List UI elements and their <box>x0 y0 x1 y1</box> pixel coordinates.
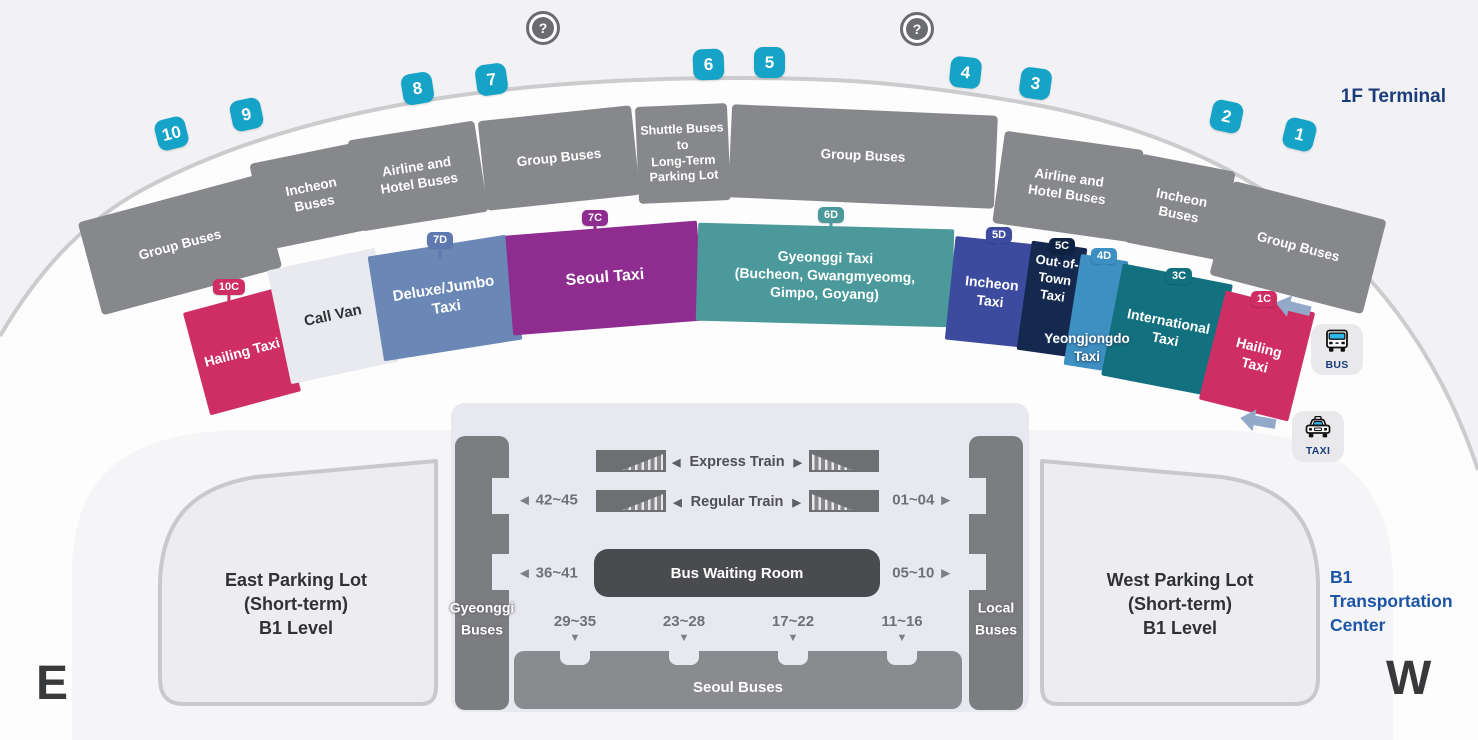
zone-label-line: (Bucheon, Gwangmyeomg, <box>735 264 916 287</box>
help-icon[interactable]: ? <box>900 12 934 46</box>
zone-label-line: Gimpo, Goyang) <box>770 283 879 304</box>
zone-gyeonggi-taxi: Gyeonggi Taxi (Bucheon, Gwangmyeomg, Gim… <box>696 223 954 328</box>
taxi-legend-button[interactable]: TAXI <box>1292 411 1344 462</box>
platform-range-01-04: 01~04 ▶ <box>892 492 950 509</box>
train-platform-graphic <box>809 490 879 512</box>
segment-label: Shuttle Buses to Long-Term Parking Lot <box>636 120 731 186</box>
b1-transportation-center-title: B1 Transportation Center <box>1330 565 1453 637</box>
door-code-6D: 6D <box>818 207 844 223</box>
door-code-4D: 4D <box>1091 248 1117 264</box>
right-triangle-icon: ▶ <box>792 496 800 509</box>
door-code-7C: 7C <box>582 210 608 226</box>
compass-west: W <box>1386 655 1431 703</box>
parking-label-line: West Parking Lot <box>1107 568 1254 592</box>
zone-deluxe-jumbo-taxi: Deluxe/Jumbo Taxi <box>368 235 523 362</box>
platform-range-text: 42~45 <box>536 492 578 509</box>
gate-number-4: 4 <box>948 55 982 89</box>
left-triangle-icon: ◀ <box>672 456 680 469</box>
zone-label-line: Yeongjongdo <box>1012 330 1162 348</box>
b1-title-line: Center <box>1330 613 1453 637</box>
gate-number-5: 5 <box>754 47 785 78</box>
segment-label: Airline and Hotel Buses <box>364 151 472 201</box>
gyeonggi-buses-label: Gyeonggi Buses <box>450 597 515 640</box>
down-triangle-icon: ▼ <box>788 633 799 643</box>
right-triangle-icon: ▶ <box>794 456 802 469</box>
gate-number-7: 7 <box>474 62 509 97</box>
yeongjongdo-taxi-label: Yeongjongdo Taxi <box>1012 330 1162 366</box>
airport-transportation-map: 1F Terminal B1 Transportation Center ? ?… <box>0 0 1478 740</box>
stop-range-text: 29~35 <box>554 613 596 630</box>
bus-bay-notch <box>560 650 590 665</box>
gate-number-3: 3 <box>1018 66 1053 101</box>
column-label-line: Gyeonggi <box>450 597 515 619</box>
column-label-line: Local <box>975 597 1017 619</box>
train-platform-graphic <box>596 450 666 472</box>
door-code-5D: 5D <box>986 227 1012 243</box>
bus-icon <box>1324 329 1350 358</box>
stop-range-text: 11~16 <box>881 613 922 630</box>
stop-range-text: 17~22 <box>772 613 814 630</box>
bus-bay-notch <box>669 650 699 665</box>
platform-notch <box>492 554 519 590</box>
bus-bay-notch <box>778 650 808 665</box>
gate-number-8: 8 <box>400 71 435 106</box>
bus-button-label: BUS <box>1325 359 1348 371</box>
curbside-segment-group-buses: Group Buses <box>478 105 641 211</box>
door-code-10C: 10C <box>213 279 245 295</box>
platform-notch <box>959 478 986 514</box>
platform-range-42-45: ◀ 42~45 <box>520 492 578 509</box>
parking-label-line: B1 Level <box>1107 616 1254 640</box>
stop-range-text: 23~28 <box>663 613 705 630</box>
parking-label-line: (Short-term) <box>1107 592 1254 616</box>
down-triangle-icon: ▼ <box>570 633 581 643</box>
door-code-7D: 7D <box>427 232 453 248</box>
down-triangle-icon: ▼ <box>679 633 690 643</box>
train-platform-graphic <box>809 450 879 472</box>
zone-seoul-taxi: Seoul Taxi <box>505 221 704 336</box>
question-mark-icon: ? <box>532 17 554 39</box>
b1-title-line: B1 <box>1330 565 1453 589</box>
platform-range-text: 05~10 <box>892 565 934 582</box>
left-triangle-icon: ◀ <box>673 496 681 509</box>
bus-stop-23-28: 23~28 ▼ <box>663 613 705 643</box>
floor-title-1f-terminal: 1F Terminal <box>1336 86 1446 108</box>
left-triangle-icon: ◀ <box>520 567 528 580</box>
segment-label: Incheon Buses <box>1142 184 1217 230</box>
local-buses-label: Local Buses <box>975 597 1017 640</box>
train-platform-graphic <box>596 490 666 512</box>
parking-label-line: (Short-term) <box>225 592 367 616</box>
platform-notch <box>959 554 986 590</box>
right-triangle-icon: ▶ <box>941 494 949 507</box>
bus-stop-11-16: 11~16 ▼ <box>881 613 922 643</box>
b1-title-line: Transportation <box>1330 589 1453 613</box>
bus-stop-29-35: 29~35 ▼ <box>554 613 596 643</box>
question-mark-icon: ? <box>906 18 928 40</box>
bus-bay-notch <box>887 650 917 665</box>
curbside-segment-airline-hotel-buses: Airline and Hotel Buses <box>992 131 1144 243</box>
parking-label-line: East Parking Lot <box>225 568 367 592</box>
taxi-icon <box>1304 416 1332 444</box>
gate-number-6: 6 <box>692 48 724 80</box>
segment-label: Airline and Hotel Buses <box>1014 163 1122 211</box>
column-label-line: Buses <box>975 619 1017 641</box>
parking-label-line: B1 Level <box>225 616 367 640</box>
segment-label: Incheon Buses <box>275 172 350 219</box>
compass-east: E <box>36 660 68 708</box>
platform-range-text: 01~04 <box>892 492 934 509</box>
platform-range-36-41: ◀ 36~41 <box>520 565 578 582</box>
curbside-segment-shuttle-buses: Shuttle Buses to Long-Term Parking Lot <box>635 103 731 204</box>
door-code-5C: 5C <box>1049 238 1075 254</box>
bus-waiting-room: Bus Waiting Room <box>594 549 880 597</box>
east-parking-lot-label: East Parking Lot (Short-term) B1 Level <box>225 568 367 640</box>
regular-train-text: Regular Train <box>691 494 784 510</box>
right-triangle-icon: ▶ <box>941 567 949 580</box>
express-train-label: ◀ Express Train ▶ <box>672 454 802 470</box>
down-triangle-icon: ▼ <box>897 633 908 643</box>
zone-label-line: Taxi <box>1012 348 1162 366</box>
platform-range-text: 36~41 <box>536 565 578 582</box>
door-code-1C: 1C <box>1251 291 1277 307</box>
regular-train-label: ◀ Regular Train ▶ <box>673 494 801 510</box>
door-code-3C: 3C <box>1166 268 1192 284</box>
column-label-line: Buses <box>450 619 515 641</box>
help-icon[interactable]: ? <box>526 11 560 45</box>
segment-label-line: Shuttle Buses to <box>636 120 729 155</box>
taxi-button-label: TAXI <box>1306 445 1330 457</box>
bus-stop-17-22: 17~22 ▼ <box>772 613 814 643</box>
platform-range-05-10: 05~10 ▶ <box>892 565 950 582</box>
curbside-segment-group-buses: Group Buses <box>728 104 998 209</box>
platform-notch <box>492 478 519 514</box>
segment-label-line: Parking Lot <box>638 167 731 187</box>
left-triangle-icon: ◀ <box>520 494 528 507</box>
bus-legend-button[interactable]: BUS <box>1311 324 1363 375</box>
express-train-text: Express Train <box>689 454 784 470</box>
west-parking-lot-label: West Parking Lot (Short-term) B1 Level <box>1107 568 1254 640</box>
